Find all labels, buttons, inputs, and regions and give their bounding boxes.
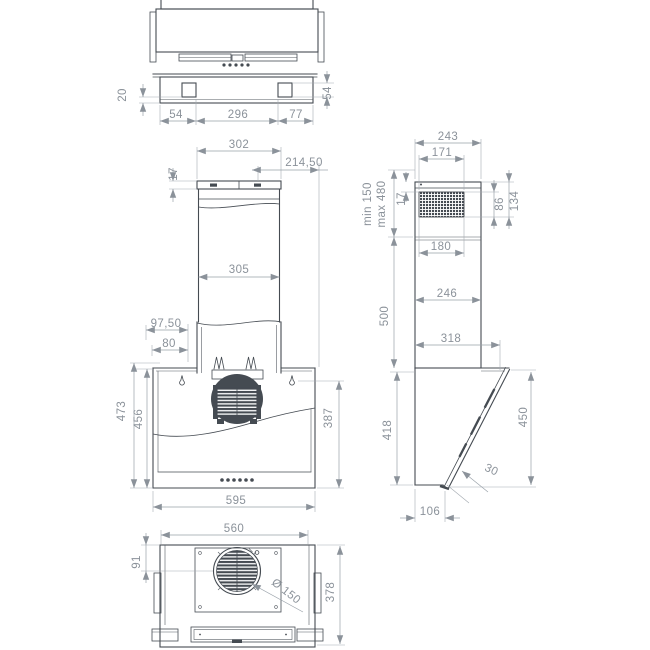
dim-side-max480: max 480 — [376, 181, 388, 228]
slanted-panel — [440, 368, 510, 490]
exhaust-grille — [419, 192, 464, 217]
front-view: 302 214,50 17 305 97,50 80 — [116, 139, 344, 512]
dim-front-80: 80 — [162, 338, 176, 350]
dim-side-318: 318 — [441, 333, 461, 345]
blower-assembly — [211, 357, 263, 424]
dim-bottom-378: 378 — [325, 582, 337, 602]
exhaust-outlet — [214, 548, 261, 595]
dim-front-305: 305 — [229, 264, 249, 276]
spring-left — [214, 357, 224, 369]
mounting-hole-right — [278, 83, 292, 97]
dim-side-171: 171 — [432, 147, 452, 159]
dim-top-77: 77 — [289, 109, 303, 121]
bracket-left — [152, 629, 178, 641]
cooker-hood-dimension-drawing: 20 54 54 296 77 — [0, 0, 650, 650]
dim-top-54-right: 54 — [322, 86, 334, 100]
dim-side-134: 134 — [509, 191, 521, 212]
bracket-right — [297, 629, 323, 641]
dim-side-450: 450 — [518, 407, 530, 427]
dim-bottom-diameter-150: Ø 150 — [269, 577, 303, 607]
dim-side-30: 30 — [483, 462, 500, 479]
dim-side-243: 243 — [438, 131, 458, 143]
dim-front-595: 595 — [226, 495, 246, 507]
dim-front-302: 302 — [229, 139, 249, 151]
bottom-view: 560 91 Ø 150 378 — [131, 523, 345, 647]
side-view: 243 171 min 150 max 480 17 86 — [362, 131, 536, 522]
front-view-outline — [153, 181, 315, 488]
top-view: 20 54 54 296 77 — [117, 0, 334, 125]
dim-side-min150: min 150 — [362, 182, 374, 226]
dim-front-214-50: 214,50 — [285, 157, 323, 169]
control-buttons-top — [222, 63, 249, 66]
keyhole-slot-left — [180, 376, 185, 386]
mounting-hole-left — [182, 83, 196, 97]
dim-side-418: 418 — [382, 420, 394, 440]
side-view-dimensions: 243 171 min 150 max 480 17 86 — [362, 131, 536, 522]
dim-front-97-50: 97,50 — [151, 318, 182, 330]
dim-front-473: 473 — [116, 401, 128, 421]
front-view-dimensions: 302 214,50 17 305 97,50 80 — [116, 139, 344, 512]
technical-drawing-page: 20 54 54 296 77 — [0, 0, 650, 650]
dim-bottom-91: 91 — [131, 555, 143, 569]
dim-top-20: 20 — [117, 88, 129, 102]
dim-side-246: 246 — [437, 288, 457, 300]
control-buttons-front — [220, 478, 254, 482]
dim-side-500: 500 — [379, 306, 391, 326]
dim-front-387: 387 — [323, 408, 335, 428]
dim-side-17: 17 — [396, 192, 408, 206]
dim-side-86: 86 — [494, 197, 506, 211]
top-view-dimensions: 20 54 54 296 77 — [117, 71, 334, 125]
top-view-outline — [150, 0, 324, 103]
keyhole-slot-right — [290, 376, 295, 386]
side-view-outline — [415, 182, 510, 489]
dim-top-296: 296 — [228, 109, 248, 121]
dim-top-54: 54 — [169, 109, 183, 121]
dim-bottom-560: 560 — [224, 523, 244, 535]
dim-side-106: 106 — [420, 506, 440, 518]
dim-side-180: 180 — [431, 241, 451, 253]
dim-front-456: 456 — [133, 409, 145, 429]
spring-right — [246, 357, 256, 369]
dim-front-17: 17 — [168, 167, 180, 181]
